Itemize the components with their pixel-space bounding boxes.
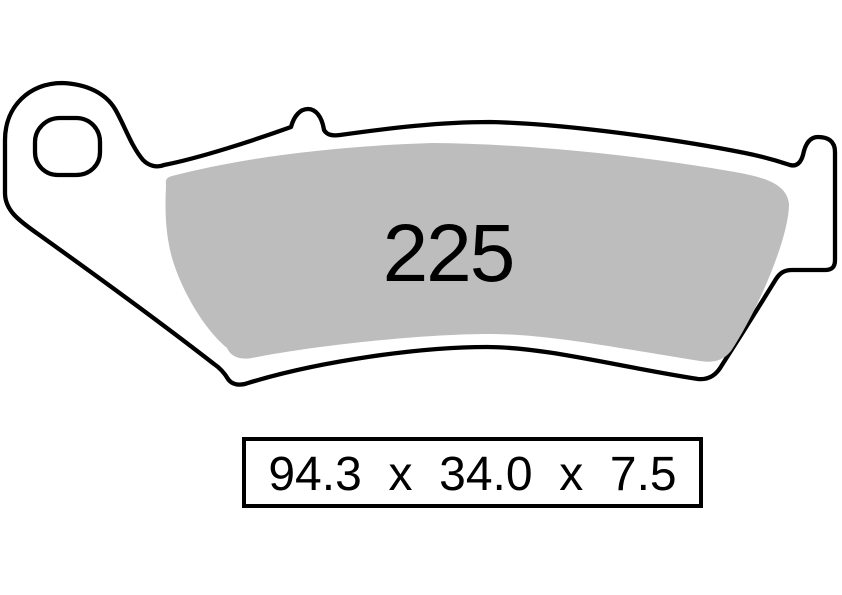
part-number-label: 225 bbox=[383, 208, 514, 299]
mounting-hole bbox=[35, 118, 100, 175]
brake-pad-diagram: 225 94.3 x 34.0 x 7.5 bbox=[0, 0, 842, 595]
dimensions-box: 94.3 x 34.0 x 7.5 bbox=[242, 437, 703, 508]
dimensions-text: 94.3 x 34.0 x 7.5 bbox=[268, 443, 676, 502]
